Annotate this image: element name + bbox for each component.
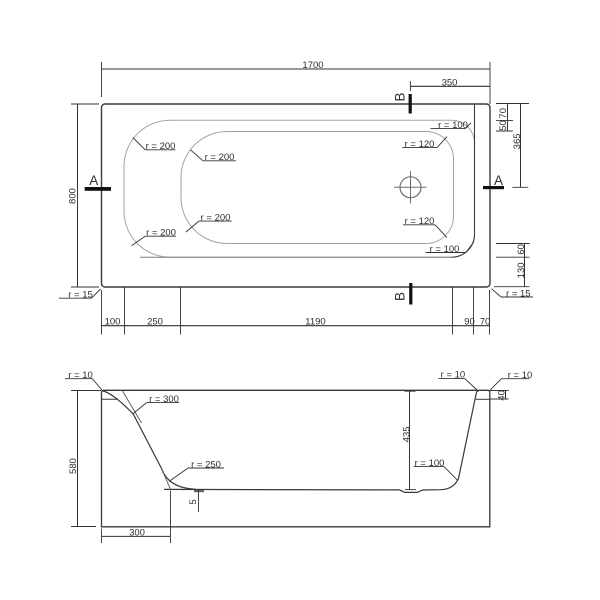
svg-text:5: 5 [188, 499, 199, 504]
svg-text:r = 10: r = 10 [68, 370, 93, 381]
svg-text:250: 250 [147, 317, 163, 328]
svg-text:r = 10: r = 10 [508, 370, 533, 381]
svg-text:B: B [393, 92, 408, 101]
svg-text:365: 365 [512, 133, 523, 149]
svg-text:r = 15: r = 15 [506, 288, 531, 299]
svg-text:60: 60 [516, 244, 527, 255]
svg-text:130: 130 [516, 262, 527, 278]
svg-text:r = 250: r = 250 [191, 459, 221, 470]
svg-text:r = 200: r = 200 [205, 152, 235, 163]
svg-text:A: A [89, 173, 98, 188]
svg-text:r = 15: r = 15 [68, 290, 93, 301]
svg-text:40: 40 [496, 390, 507, 401]
svg-text:70: 70 [498, 108, 509, 119]
svg-text:1700: 1700 [302, 60, 323, 71]
svg-text:100: 100 [105, 317, 121, 328]
svg-text:r = 120: r = 120 [405, 216, 435, 227]
svg-text:r = 200: r = 200 [146, 141, 176, 152]
svg-text:r = 100: r = 100 [415, 458, 445, 469]
svg-text:r = 100: r = 100 [430, 244, 460, 255]
svg-text:435: 435 [402, 426, 413, 442]
svg-text:A: A [494, 173, 503, 188]
svg-text:800: 800 [68, 188, 79, 204]
svg-text:r = 300: r = 300 [149, 394, 179, 405]
svg-text:350: 350 [442, 77, 458, 88]
svg-text:90: 90 [464, 317, 475, 328]
svg-text:r = 100: r = 100 [438, 120, 468, 131]
svg-text:70: 70 [480, 317, 491, 328]
svg-text:300: 300 [129, 527, 145, 538]
svg-text:r = 200: r = 200 [146, 228, 176, 239]
svg-text:580: 580 [68, 458, 79, 474]
svg-text:50: 50 [498, 120, 509, 131]
svg-text:r = 200: r = 200 [201, 212, 231, 223]
svg-text:r = 120: r = 120 [405, 139, 435, 150]
svg-text:1190: 1190 [305, 317, 325, 328]
svg-text:B: B [393, 292, 408, 301]
svg-text:r = 10: r = 10 [441, 370, 466, 381]
